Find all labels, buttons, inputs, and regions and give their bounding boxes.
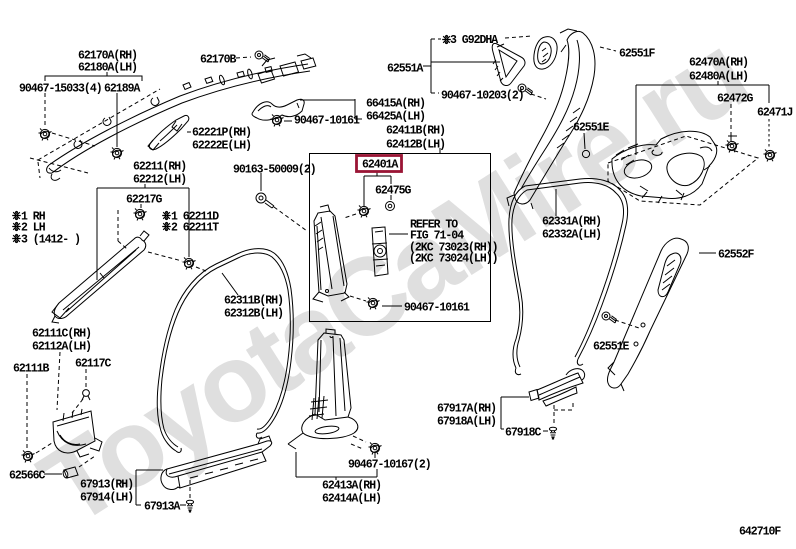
svg-text:90467-10161: 90467-10161	[404, 302, 470, 315]
svg-text:62472G: 62472G	[717, 93, 754, 106]
svg-text:67913(RH): 67913(RH)	[80, 479, 133, 492]
svg-text:67914(LH): 67914(LH)	[80, 492, 133, 505]
svg-text:62551A: 62551A	[387, 63, 424, 76]
svg-text:62411B(RH): 62411B(RH)	[386, 125, 445, 138]
svg-text:62189A: 62189A	[104, 83, 141, 96]
svg-text:(2KC 73024(LH)): (2KC 73024(LH))	[409, 253, 498, 266]
svg-text:62117C: 62117C	[75, 358, 112, 371]
svg-text:62470A(RH): 62470A(RH)	[689, 57, 748, 70]
svg-text:62551F: 62551F	[619, 48, 656, 61]
svg-text:3 G92DHA: 3 G92DHA	[450, 34, 498, 47]
svg-text:62217G: 62217G	[126, 194, 163, 207]
svg-text:66425A(LH): 66425A(LH)	[366, 111, 425, 124]
svg-text:90467-10167(2): 90467-10167(2)	[348, 459, 431, 472]
svg-text:642710F: 642710F	[739, 526, 781, 539]
svg-text:90467-10203(2): 90467-10203(2)	[441, 90, 524, 103]
svg-text:90467-10161: 90467-10161	[294, 115, 360, 128]
svg-text:62221P(RH): 62221P(RH)	[192, 127, 251, 140]
svg-text:62551E: 62551E	[573, 122, 610, 135]
svg-text:62312B(LH): 62312B(LH)	[224, 308, 283, 321]
svg-text:67918A(LH): 67918A(LH)	[437, 416, 496, 429]
svg-text:66415A(RH): 66415A(RH)	[366, 98, 425, 111]
svg-text:62480A(LH): 62480A(LH)	[689, 71, 748, 84]
svg-text:62566C: 62566C	[9, 470, 46, 483]
svg-text:62111C(RH): 62111C(RH)	[32, 328, 91, 341]
svg-text:3 (1412- ): 3 (1412- )	[21, 234, 80, 247]
svg-text:62401A: 62401A	[362, 159, 399, 172]
svg-text:62331A(RH): 62331A(RH)	[542, 216, 601, 229]
svg-text:62222E(LH): 62222E(LH)	[192, 140, 251, 153]
svg-text:67913A: 67913A	[144, 501, 181, 514]
svg-text:62212(LH): 62212(LH)	[133, 174, 186, 187]
svg-text:2 62211T: 2 62211T	[171, 222, 219, 235]
svg-text:62551E: 62551E	[593, 341, 630, 354]
svg-text:62111B: 62111B	[13, 363, 50, 376]
svg-text:62412B(LH): 62412B(LH)	[386, 139, 445, 152]
svg-text:90163-50009(2): 90163-50009(2)	[233, 164, 316, 177]
svg-text:62211(RH): 62211(RH)	[133, 161, 186, 174]
svg-text:62471J: 62471J	[757, 107, 793, 120]
svg-text:62112A(LH): 62112A(LH)	[32, 341, 91, 354]
svg-text:62413A(RH): 62413A(RH)	[322, 480, 381, 493]
svg-text:62414A(LH): 62414A(LH)	[322, 493, 381, 506]
svg-text:62180A(LH): 62180A(LH)	[78, 62, 137, 75]
svg-text:67918C: 67918C	[505, 427, 542, 440]
svg-text:62552F: 62552F	[718, 249, 755, 262]
svg-text:62332A(LH): 62332A(LH)	[542, 229, 601, 242]
svg-text:67917A(RH): 67917A(RH)	[437, 403, 496, 416]
svg-text:62170B: 62170B	[200, 54, 237, 67]
svg-text:62475G: 62475G	[375, 185, 412, 198]
svg-text:62311B(RH): 62311B(RH)	[224, 295, 283, 308]
svg-text:90467-15033(4): 90467-15033(4)	[19, 83, 102, 96]
